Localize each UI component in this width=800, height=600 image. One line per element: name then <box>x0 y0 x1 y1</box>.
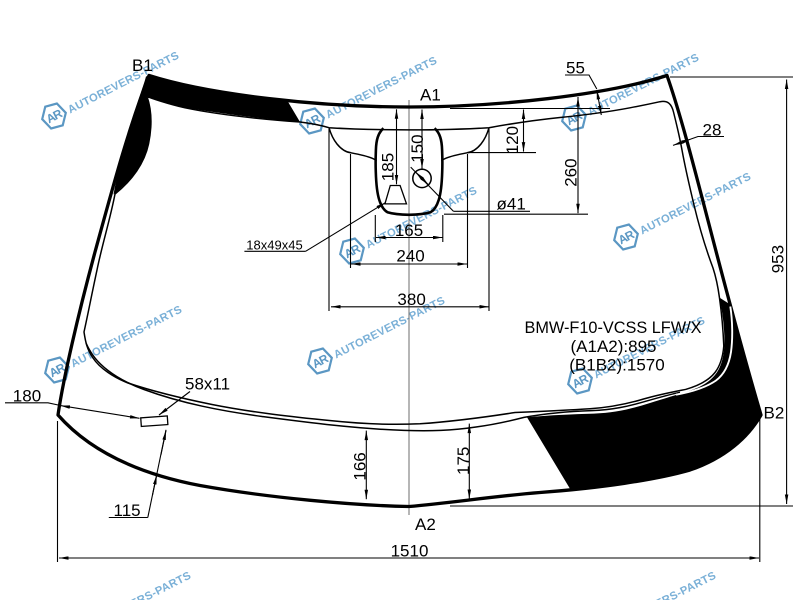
svg-text:A2: A2 <box>415 515 436 534</box>
svg-text:166: 166 <box>350 452 369 480</box>
svg-text:953: 953 <box>768 245 787 273</box>
svg-text:(B1B2):1570: (B1B2):1570 <box>569 355 664 374</box>
svg-text:B1: B1 <box>132 56 153 75</box>
svg-text:58x11: 58x11 <box>185 374 230 393</box>
svg-text:(A1A2):895: (A1A2):895 <box>571 337 657 356</box>
svg-text:185: 185 <box>379 153 398 181</box>
svg-text:BMW-F10-VCSS LFW/X: BMW-F10-VCSS LFW/X <box>524 319 701 337</box>
svg-text:150: 150 <box>408 134 427 162</box>
svg-text:1510: 1510 <box>391 542 429 561</box>
svg-text:380: 380 <box>397 290 425 309</box>
svg-text:180: 180 <box>13 386 41 405</box>
svg-text:175: 175 <box>454 447 473 475</box>
svg-text:18x49x45: 18x49x45 <box>246 237 302 252</box>
svg-text:28: 28 <box>703 120 722 139</box>
svg-text:260: 260 <box>562 158 581 186</box>
svg-text:B2: B2 <box>764 404 785 423</box>
svg-text:A1: A1 <box>420 86 441 105</box>
svg-text:55: 55 <box>566 58 585 77</box>
svg-text:115: 115 <box>114 501 141 520</box>
svg-text:240: 240 <box>396 247 424 266</box>
svg-text:165: 165 <box>395 221 423 240</box>
svg-text:120: 120 <box>503 126 522 154</box>
svg-text:ø41: ø41 <box>497 194 526 213</box>
